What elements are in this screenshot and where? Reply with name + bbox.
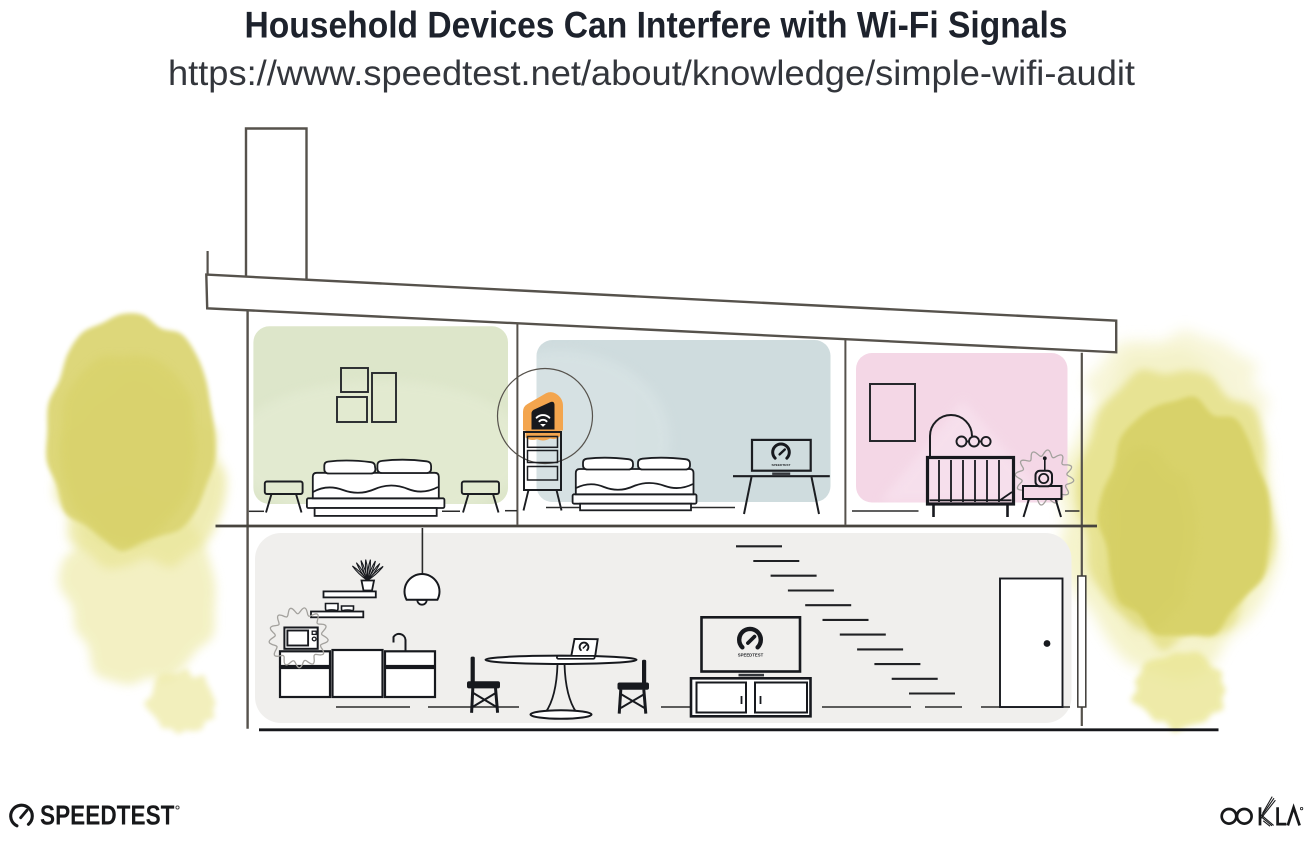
svg-text:SPEEDTEST: SPEEDTEST — [772, 463, 791, 467]
svg-text:Household Devices Can Interfer: Household Devices Can Interfere with Wi-… — [245, 5, 1068, 46]
svg-text:https://www.speedtest.net/abou: https://www.speedtest.net/about/knowledg… — [168, 53, 1135, 93]
svg-text:SPEEDTEST: SPEEDTEST — [738, 653, 764, 658]
svg-text:SPEEDTEST: SPEEDTEST — [40, 800, 175, 831]
